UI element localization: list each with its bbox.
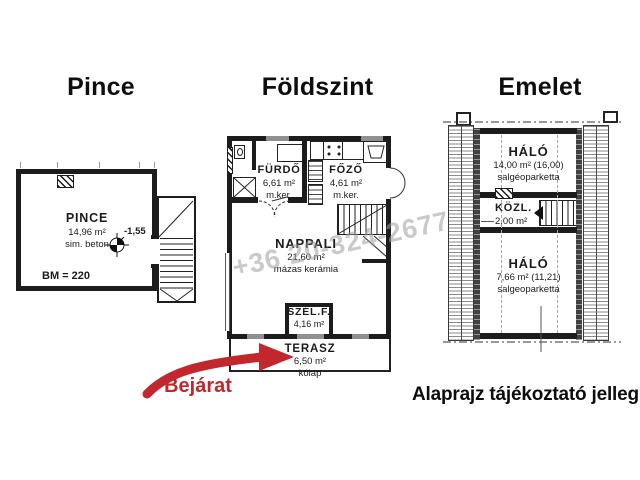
room-floor: m.ker. [248,190,310,202]
roof-right [583,125,609,341]
window-top-1 [266,136,289,141]
room-area: 4,61 m² [316,178,376,190]
room-floor: sim. beton [47,239,127,251]
wall-bottom [480,333,577,339]
room-area: 4,16 m² [277,319,341,330]
window-bottom-3 [352,334,369,339]
pince-level-value: -1,55 [124,226,146,238]
roof-ridge-line [596,126,597,340]
terasz-label: TERASZ 6,50 m² kólap [250,342,370,380]
fozo-label: FŐZŐ 4,61 m² m.ker. [316,164,376,202]
room-area: 6,50 m² [250,356,370,368]
toilet [234,145,245,159]
halo-bottom-label: HÁLÓ 7,66 m² (11,21) salgeoparketta [480,256,577,296]
room-area: 14,00 m² (16,00) [480,160,577,172]
room-name: HÁLÓ [480,144,577,160]
window-top-2 [361,136,383,141]
room-area: 14,96 m² [47,227,127,239]
room-floor: kólap [250,368,370,380]
chimney-hatch [227,147,233,174]
disclaimer-text: Alaprajz tájékoztató jellegű! [412,383,640,407]
toilet-bowl [237,148,243,156]
door-jamb [151,264,157,268]
title-pince: Pince [40,72,162,103]
room-name: TERASZ [250,342,370,356]
wall-top [480,128,577,134]
pince-bm-note: BM = 220 [42,270,90,284]
dim-tick [20,162,21,168]
chimney-left [456,112,471,126]
pince-label: PINCE 14,96 m² sim. beton [47,211,127,250]
pince-stair-treads [160,238,193,289]
floorplan-page: Pince Földszint Emelet PINCE 14,96 m² si… [0,0,640,480]
wall-kozl-halo2 [480,227,577,233]
room-area: 7,66 m² (11,21) [480,272,577,284]
room-name: PINCE [47,211,127,227]
title-foldszint: Földszint [240,72,395,103]
door-jamb [151,235,157,239]
window-left [225,253,230,331]
room-name: FŐZŐ [316,164,376,178]
room-name: HÁLÓ [480,256,577,272]
pince-chimney-hatch [57,175,74,188]
bathtub [277,144,303,162]
door-gap-right [386,168,391,199]
entrance-label: Bejárat [158,374,238,399]
room-name: SZÉL.F. [277,306,341,319]
stair-landing-edge [362,259,391,263]
emelet-plan: HÁLÓ 14,00 m² (16,00) salgéoparketta KÖZ… [443,108,623,358]
dim-tick [154,162,155,168]
title-emelet: Emelet [470,72,610,103]
window-bottom-1 [247,334,264,339]
dim-tick [57,162,58,168]
pince-door-gap [152,239,159,264]
room-name: FÜRDŐ [248,164,310,178]
room-floor: salgéoparketta [480,172,577,184]
szelf-label: SZÉL.F. 4,16 m² [277,306,341,330]
stove [323,142,343,159]
room-area: 6,61 m² [248,178,310,190]
kitchen-counter [310,141,364,160]
room-floor: salgeoparketta [480,284,577,296]
window-bottom-2 [297,334,324,339]
chimney-right [603,111,618,123]
dim-tick [99,162,100,168]
furdo-label: FÜRDŐ 6,61 m² m.ker. [248,164,310,202]
room-floor: m.ker. [316,190,376,202]
halo-top-label: HÁLÓ 14,00 m² (16,00) salgéoparketta [480,144,577,184]
dim-tick [139,162,140,168]
sink [363,141,388,163]
